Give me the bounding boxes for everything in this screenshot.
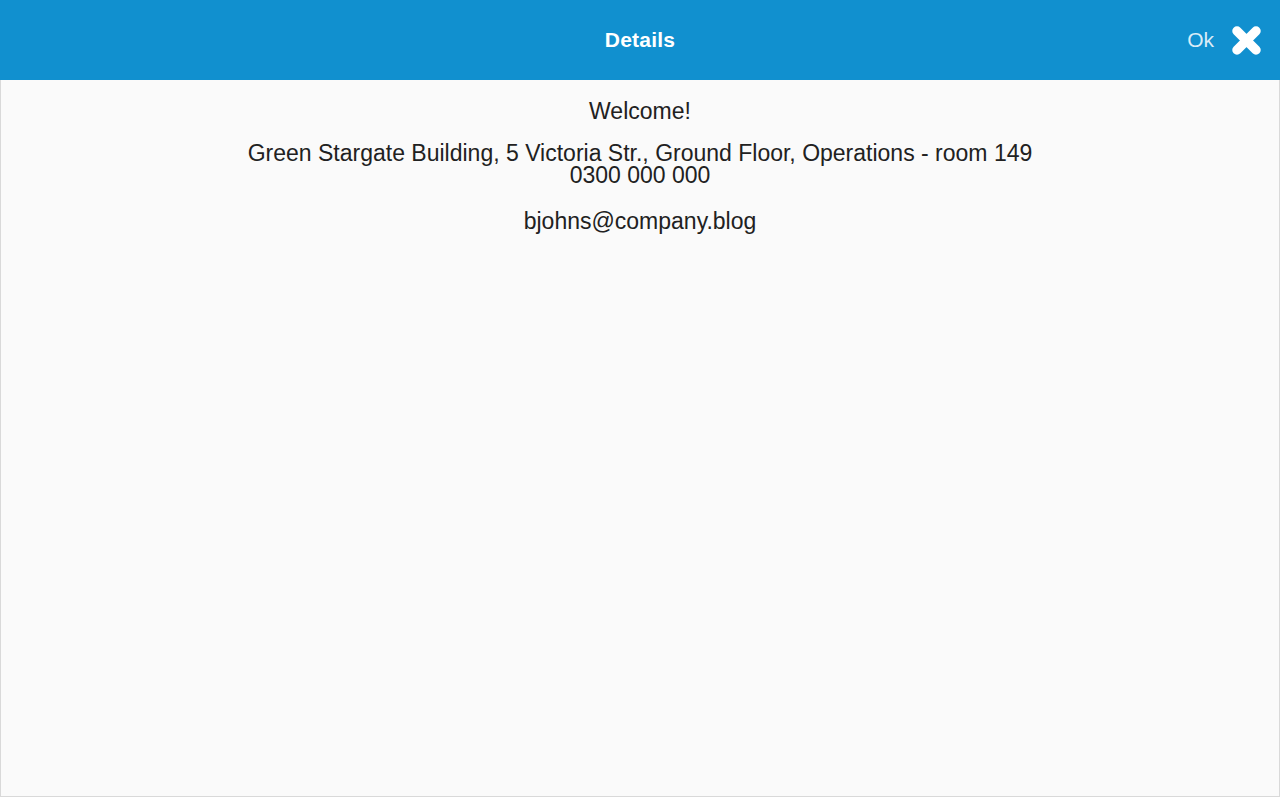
- address-text: Green Stargate Building, 5 Victoria Str.…: [1, 142, 1279, 164]
- ok-button[interactable]: Ok: [1187, 28, 1214, 52]
- close-button[interactable]: [1229, 23, 1263, 57]
- contact-block: Green Stargate Building, 5 Victoria Str.…: [1, 142, 1279, 186]
- page-title: Details: [0, 0, 1280, 80]
- welcome-text: Welcome!: [1, 96, 1279, 126]
- close-icon: [1230, 24, 1263, 57]
- phone-text: 0300 000 000: [1, 164, 1279, 186]
- details-dialog: Details Ok Welcome! Green Stargate Build…: [0, 0, 1280, 800]
- email-text: bjohns@company.blog: [1, 208, 1279, 234]
- header-bar: Details Ok: [0, 0, 1280, 80]
- header-actions: Ok: [1187, 0, 1263, 80]
- content-panel: Welcome! Green Stargate Building, 5 Vict…: [0, 80, 1280, 797]
